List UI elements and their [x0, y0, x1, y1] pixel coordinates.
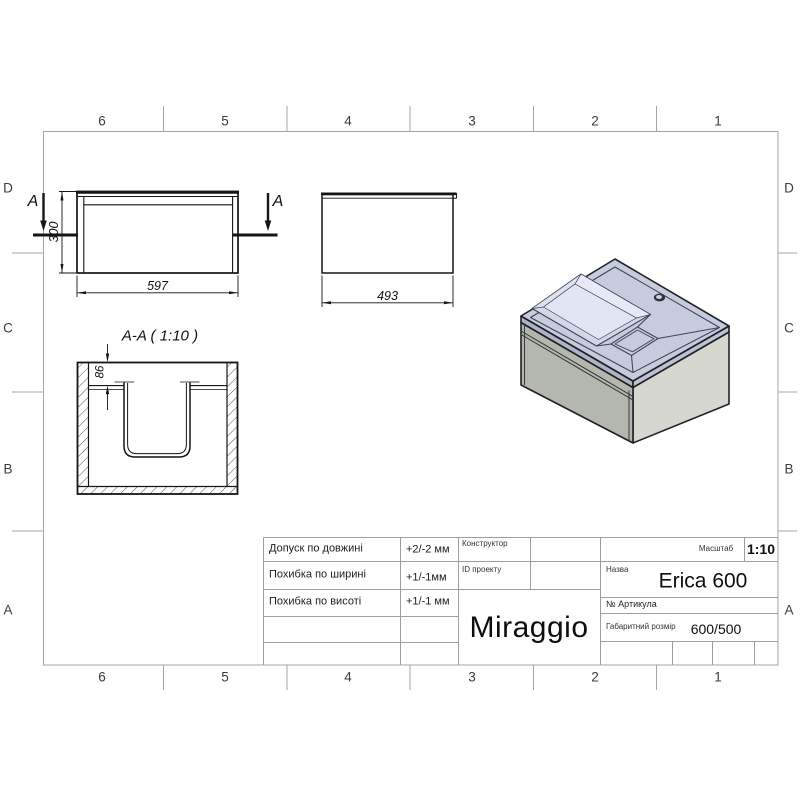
zone-col-bottom-4: 4 — [344, 670, 352, 684]
zone-row-left-a: A — [3, 603, 12, 617]
zone-col-top-4: 4 — [344, 114, 352, 128]
zone-col-bottom-5: 5 — [221, 670, 229, 684]
section-letter-right: A — [273, 194, 284, 210]
zone-col-bottom-6: 6 — [98, 670, 106, 684]
section-view-title: A-A ( 1:10 ) — [122, 329, 198, 344]
iso-view — [521, 259, 729, 443]
brand-logo-text: Miraggio — [469, 613, 588, 643]
product-name: Erica 600 — [659, 571, 748, 592]
constructor-label: Конструктор — [462, 540, 508, 548]
zone-row-right-d: D — [784, 181, 794, 195]
size-label: Габаритний розмір — [606, 623, 676, 631]
drawing-sheet: 6 5 4 3 2 1 6 5 4 3 2 1 D C B A D C B A … — [0, 0, 800, 800]
zone-row-right-a: A — [784, 603, 793, 617]
tolerance-value-length: +2/-2 мм — [406, 545, 450, 556]
zone-row-right-c: C — [784, 321, 794, 335]
zone-col-bottom-3: 3 — [468, 670, 476, 684]
scale-label: Масштаб — [699, 545, 733, 553]
dim-width-597: 597 — [147, 280, 168, 293]
dim-height-300: 300 — [48, 222, 61, 243]
drawing-canvas — [0, 0, 800, 800]
size-value: 600/500 — [691, 622, 742, 636]
tolerance-value-width: +1/-1мм — [406, 573, 447, 584]
tolerance-label-height: Похибка по висоті — [269, 597, 361, 608]
zone-row-left-b: B — [3, 462, 12, 476]
dim-basin-86: 86 — [95, 366, 107, 379]
zone-col-top-6: 6 — [98, 114, 106, 128]
zone-row-left-d: D — [3, 181, 13, 195]
scale-value: 1:10 — [747, 542, 775, 556]
zone-row-left-c: C — [3, 321, 13, 335]
zone-col-bottom-1: 1 — [714, 670, 722, 684]
section-letter-left: A — [28, 194, 39, 210]
zone-col-top-2: 2 — [591, 114, 599, 128]
project-id-label: ID проекту — [462, 566, 501, 574]
faucet-hole-icon — [654, 294, 665, 302]
zone-col-top-3: 3 — [468, 114, 476, 128]
tolerance-label-width: Похибка по ширині — [269, 570, 366, 581]
zone-col-bottom-2: 2 — [591, 670, 599, 684]
tolerance-label-length: Допуск по довжині — [269, 544, 363, 555]
tolerance-value-height: +1/-1 мм — [406, 597, 450, 608]
name-label: Назва — [606, 566, 628, 574]
dim-depth-493: 493 — [377, 290, 398, 303]
zone-row-right-b: B — [784, 462, 793, 476]
zone-col-top-1: 1 — [714, 114, 722, 128]
article-label: № Артикула — [606, 600, 657, 609]
zone-col-top-5: 5 — [221, 114, 229, 128]
